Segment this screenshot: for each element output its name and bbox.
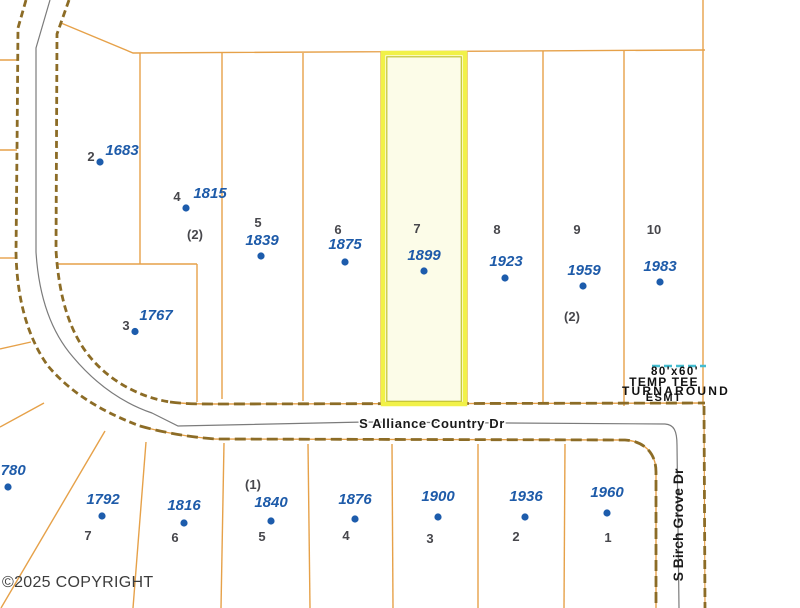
svg-text:1: 1: [604, 530, 611, 545]
svg-text:S Alliance Country Dr: S Alliance Country Dr: [359, 416, 505, 431]
svg-text:1876: 1876: [338, 491, 372, 508]
svg-text:1960: 1960: [590, 484, 624, 501]
svg-text:1815: 1815: [193, 185, 227, 202]
svg-text:2: 2: [512, 529, 519, 544]
svg-text:10: 10: [647, 222, 661, 237]
svg-text:1983: 1983: [643, 258, 677, 275]
svg-text:1839: 1839: [245, 232, 279, 249]
svg-text:2: 2: [87, 149, 94, 164]
svg-text:1900: 1900: [421, 488, 455, 505]
svg-text:6: 6: [171, 530, 178, 545]
svg-text:3: 3: [122, 318, 129, 333]
svg-text:9: 9: [573, 222, 580, 237]
svg-text:1923: 1923: [489, 253, 523, 270]
svg-text:1816: 1816: [167, 497, 201, 514]
svg-text:1780: 1780: [0, 462, 26, 479]
svg-text:ESMT: ESMT: [646, 392, 683, 404]
svg-text:(1): (1): [245, 477, 261, 492]
svg-text:7: 7: [413, 221, 420, 236]
svg-text:1959: 1959: [567, 262, 601, 279]
svg-text:1767: 1767: [139, 307, 173, 324]
svg-text:4: 4: [342, 528, 350, 543]
svg-text:(2): (2): [564, 309, 580, 324]
svg-text:6: 6: [334, 222, 341, 237]
svg-text:1899: 1899: [407, 247, 441, 264]
svg-text:4: 4: [173, 189, 181, 204]
svg-text:1840: 1840: [254, 494, 288, 511]
svg-text:5: 5: [254, 215, 261, 230]
svg-text:©2025 COPYRIGHT: ©2025 COPYRIGHT: [2, 574, 153, 591]
svg-text:7: 7: [84, 528, 91, 543]
svg-text:1683: 1683: [105, 142, 139, 159]
svg-text:1936: 1936: [509, 488, 543, 505]
svg-text:(2): (2): [187, 227, 203, 242]
svg-text:3: 3: [426, 531, 433, 546]
svg-text:8: 8: [493, 222, 500, 237]
svg-text:S Birch Grove Dr: S Birch Grove Dr: [670, 468, 686, 581]
svg-text:5: 5: [258, 529, 265, 544]
svg-text:1875: 1875: [328, 236, 362, 253]
svg-text:1792: 1792: [86, 491, 120, 508]
